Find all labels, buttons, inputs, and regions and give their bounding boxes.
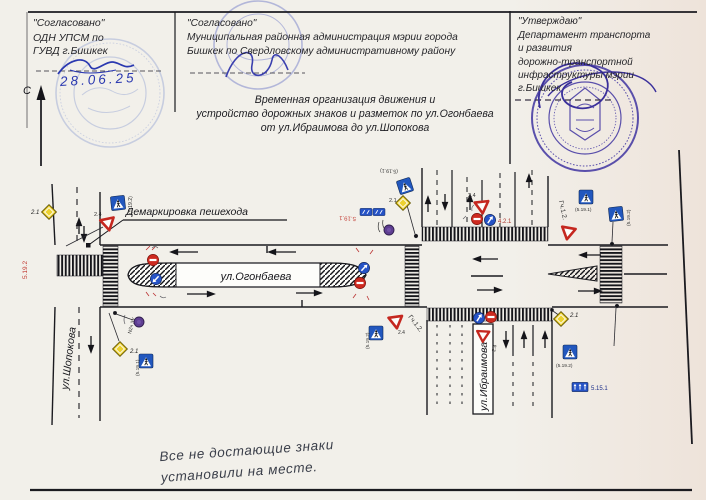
pedestrian-crossing-sign-icon [608,206,623,221]
sign-code: Гч.1.2. [557,200,568,221]
no-entry-sign-icon [471,213,482,224]
lane-direction-plate-icon [360,208,372,215]
title-line: устройство дорожных знаков и разметок по… [170,108,520,122]
sign-code-red: 5.19.2 [22,261,29,279]
approval-block-right: "Утверждаю" Департамент транспорта и раз… [518,15,650,95]
sign-code: (5.19.2) [556,363,573,369]
give-way-sign-icon [389,316,404,329]
crosswalk-ogonbaeva-east [600,246,622,303]
priority-road-sign-icon [113,342,128,357]
sign-code: (5.19.2) [626,209,632,226]
sign-code: (5.19.2) [365,332,371,349]
gore-island [548,266,597,281]
sign-code: 2.4 [94,212,102,218]
approval-block-center: "Согласовано" Муниципальная районная адм… [187,17,517,58]
approval-status: "Утверждаю" [518,15,650,28]
north-label: С [23,85,31,97]
street-name-box-ibraimova: ул.Ибраимова 2.4 [473,324,499,414]
sign-code: 2.1 [129,349,138,355]
lane-direction-plate-icon [373,208,385,215]
sign-code: 2.4 [491,344,499,352]
sign-code: (5.19.1) [575,207,592,213]
street-name-ogonbaeva: ул.Огонбаева [220,271,292,283]
sign-code: 4.2.1 [498,219,512,225]
keep-right-sign-icon [150,273,161,284]
north-arrow: С [23,85,46,166]
signs-shopokova-south: N2ч ЗУ 2.1 (5.19.1) [113,316,153,376]
give-way-sign-icon [100,217,116,231]
scanned-traffic-scheme-sheet: С ул.Огонбаева ул.Шопокова [0,0,706,500]
crosswalk-ibraimova-north [422,227,548,241]
lane-count-plate-icon [572,382,588,391]
sign-code: (5.19.1) [380,167,398,174]
sign-code: (5.19.1) [135,359,141,376]
removed-sign-mark-icon [134,317,144,327]
signs-mid-southwest: (5.19.2) 2.4 Гч.1.2. [365,314,424,349]
approval-status: "Согласовано" [187,17,517,30]
signs-ibraimova-north: 2.4 4.2.1 [468,193,512,226]
street-name-ibraimova: ул.Ибраимова [478,342,490,412]
priority-road-sign-icon [554,312,569,327]
no-entry-sign-icon [354,277,365,288]
approval-org-line: ГУВД г.Бишкек [33,45,108,59]
pedestrian-crossing-sign-icon [579,190,593,204]
approval-org-line: Муниципальная районная администрация мэр… [187,31,517,44]
sign-code-red: 5.19.1 [338,214,356,221]
sign-code: 5.15.1 [591,386,608,392]
sign-code: (5.19.2) [128,196,134,214]
pedestrian-crossing-sign-icon [396,177,414,195]
sign-code: Гч.1.2. [406,314,424,334]
crosswalk-ogonbaeva-mid [405,246,419,306]
pedestrian-crossing-sign-icon [139,354,153,368]
pedestrian-crossing-sign-icon [110,195,125,210]
drawing-title: Временная организация движения и устройс… [170,94,520,136]
pedestrian-crossing-sign-icon [369,326,383,340]
approval-org-line: Департамент транспорта [518,29,650,42]
sign-code: 2.4 [468,193,476,199]
sign-code: 2.1 [569,313,578,319]
keep-right-sign-icon [484,214,497,227]
signs-mid-northwest: 5.19.1 (5.19.1) 2.1 [338,167,413,235]
no-entry-sign-icon [147,254,158,265]
title-line: Временная организация движения и [170,94,520,108]
approval-org-line: ОДН УПСМ по [33,32,108,46]
approval-block-left: "Согласовано" ОДН УПСМ по ГУВД г.Бишкек [33,17,108,59]
signs-giveway-east-approach: Гч.1.2. [557,200,576,241]
demarcation-callout: Демаркировка пешехода [86,206,287,248]
approval-status: "Согласовано" [33,17,108,31]
approval-org-line: г.Бишкек [518,82,650,95]
crosswalk-shopokova [57,255,103,276]
give-way-sign-icon [475,201,490,214]
street-name-shopokova: ул.Шопокова [59,326,79,391]
sign-code: 2.1 [30,210,39,216]
demarcation-label: Демаркировка пешехода [125,206,248,218]
keep-right-sign-icon [358,262,369,273]
approval-org-line: и развития [518,42,650,55]
approval-org-line: дорожно-транспортной [518,56,650,69]
median-island: ул.Огонбаева [128,263,366,287]
approval-org-line: инфраструктуры мэрии [518,69,650,82]
signs-east-crosswalk-north: (5.19.1) (5.19.2) [575,190,632,226]
crosswalk-ogonbaeva-west [103,246,118,306]
removed-sign-mark-icon [384,225,394,235]
give-way-sign-icon [560,227,575,241]
sign-code: 2.4 [398,330,405,336]
no-entry-sign-icon [485,311,496,322]
title-line: от ул.Ибраимова до ул.Шопокова [170,122,520,136]
approval-org-line: Бишкек по Свердловскому административном… [187,45,517,58]
pedestrian-crossing-sign-icon [563,345,577,359]
